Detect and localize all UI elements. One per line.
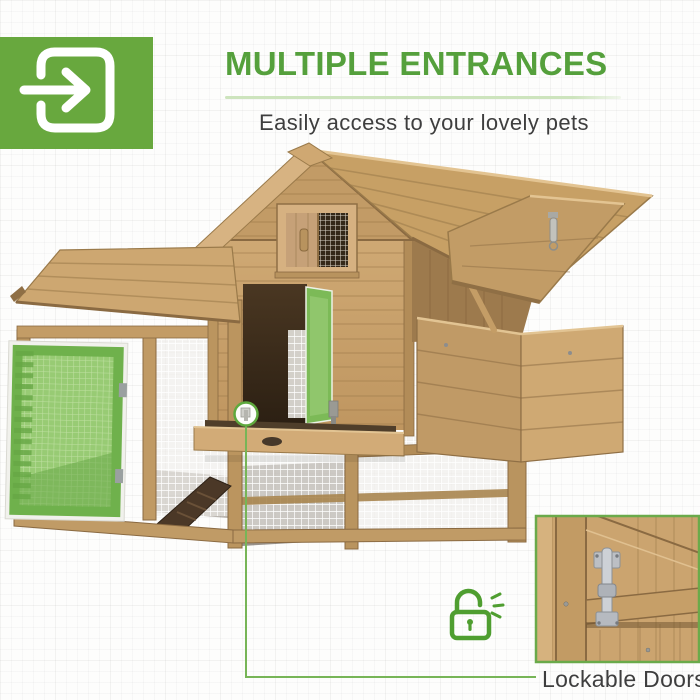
product-infographic: MULTIPLE ENTRANCES Easily access to your… — [0, 0, 700, 700]
coop-photo — [0, 0, 700, 700]
door-hinge — [119, 383, 127, 397]
mesh-window — [275, 204, 359, 278]
latch-inset — [536, 516, 700, 662]
left-green-door — [5, 341, 128, 521]
run-roof — [10, 247, 240, 322]
pullout-tray — [194, 420, 405, 462]
open-padlock-icon — [452, 591, 503, 638]
callout-marker — [235, 403, 258, 426]
tray-handle — [262, 437, 282, 446]
callout-label: Lockable Doors — [542, 666, 700, 693]
metal-latch — [594, 548, 620, 626]
door-hinge — [115, 469, 123, 483]
